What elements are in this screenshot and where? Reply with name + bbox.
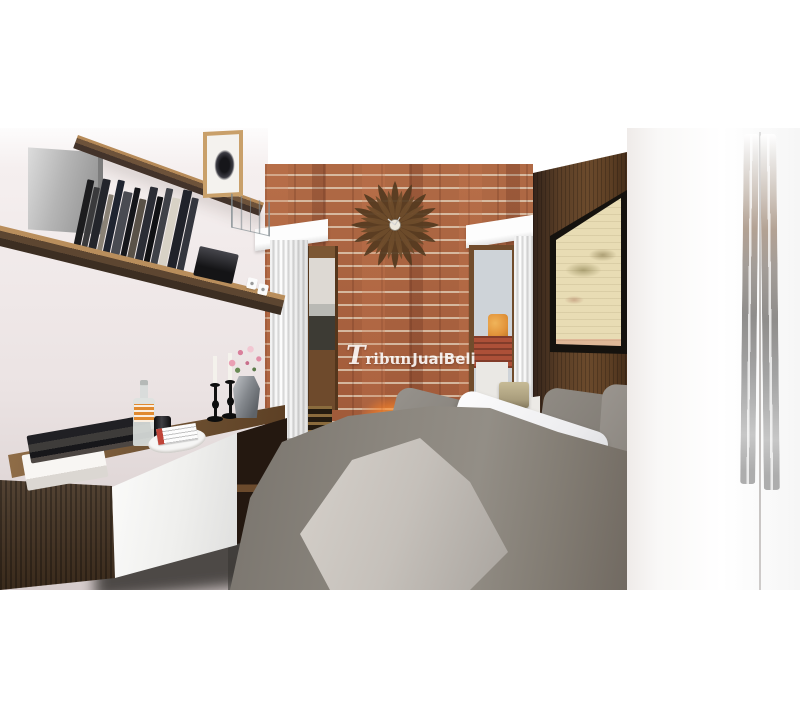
- candle-bulge: [227, 397, 234, 406]
- bedroom-render: TribunJualBeli: [0, 128, 800, 590]
- watermark-initial: T: [346, 343, 365, 369]
- white-candle: [213, 356, 217, 384]
- listing-photo-page: { "watermark": { "initial": "T", "serif_…: [0, 0, 800, 720]
- bottle-label: [134, 404, 154, 422]
- watermark-serif-part: ribun: [365, 350, 411, 368]
- tv-console-side: [0, 468, 118, 590]
- framed-art-print: [203, 130, 243, 198]
- sunburst-wall-clock: [345, 175, 445, 275]
- pink-flowers: [222, 340, 268, 382]
- watermark-bold-part: JualBeli: [412, 350, 475, 368]
- left-window: [306, 246, 338, 410]
- candle-base: [222, 413, 238, 419]
- faceted-vase: [233, 376, 260, 418]
- glass-bottle: [133, 380, 155, 446]
- candle-bulge: [212, 400, 219, 409]
- tribunjualbeli-watermark: TribunJualBeli: [346, 343, 476, 373]
